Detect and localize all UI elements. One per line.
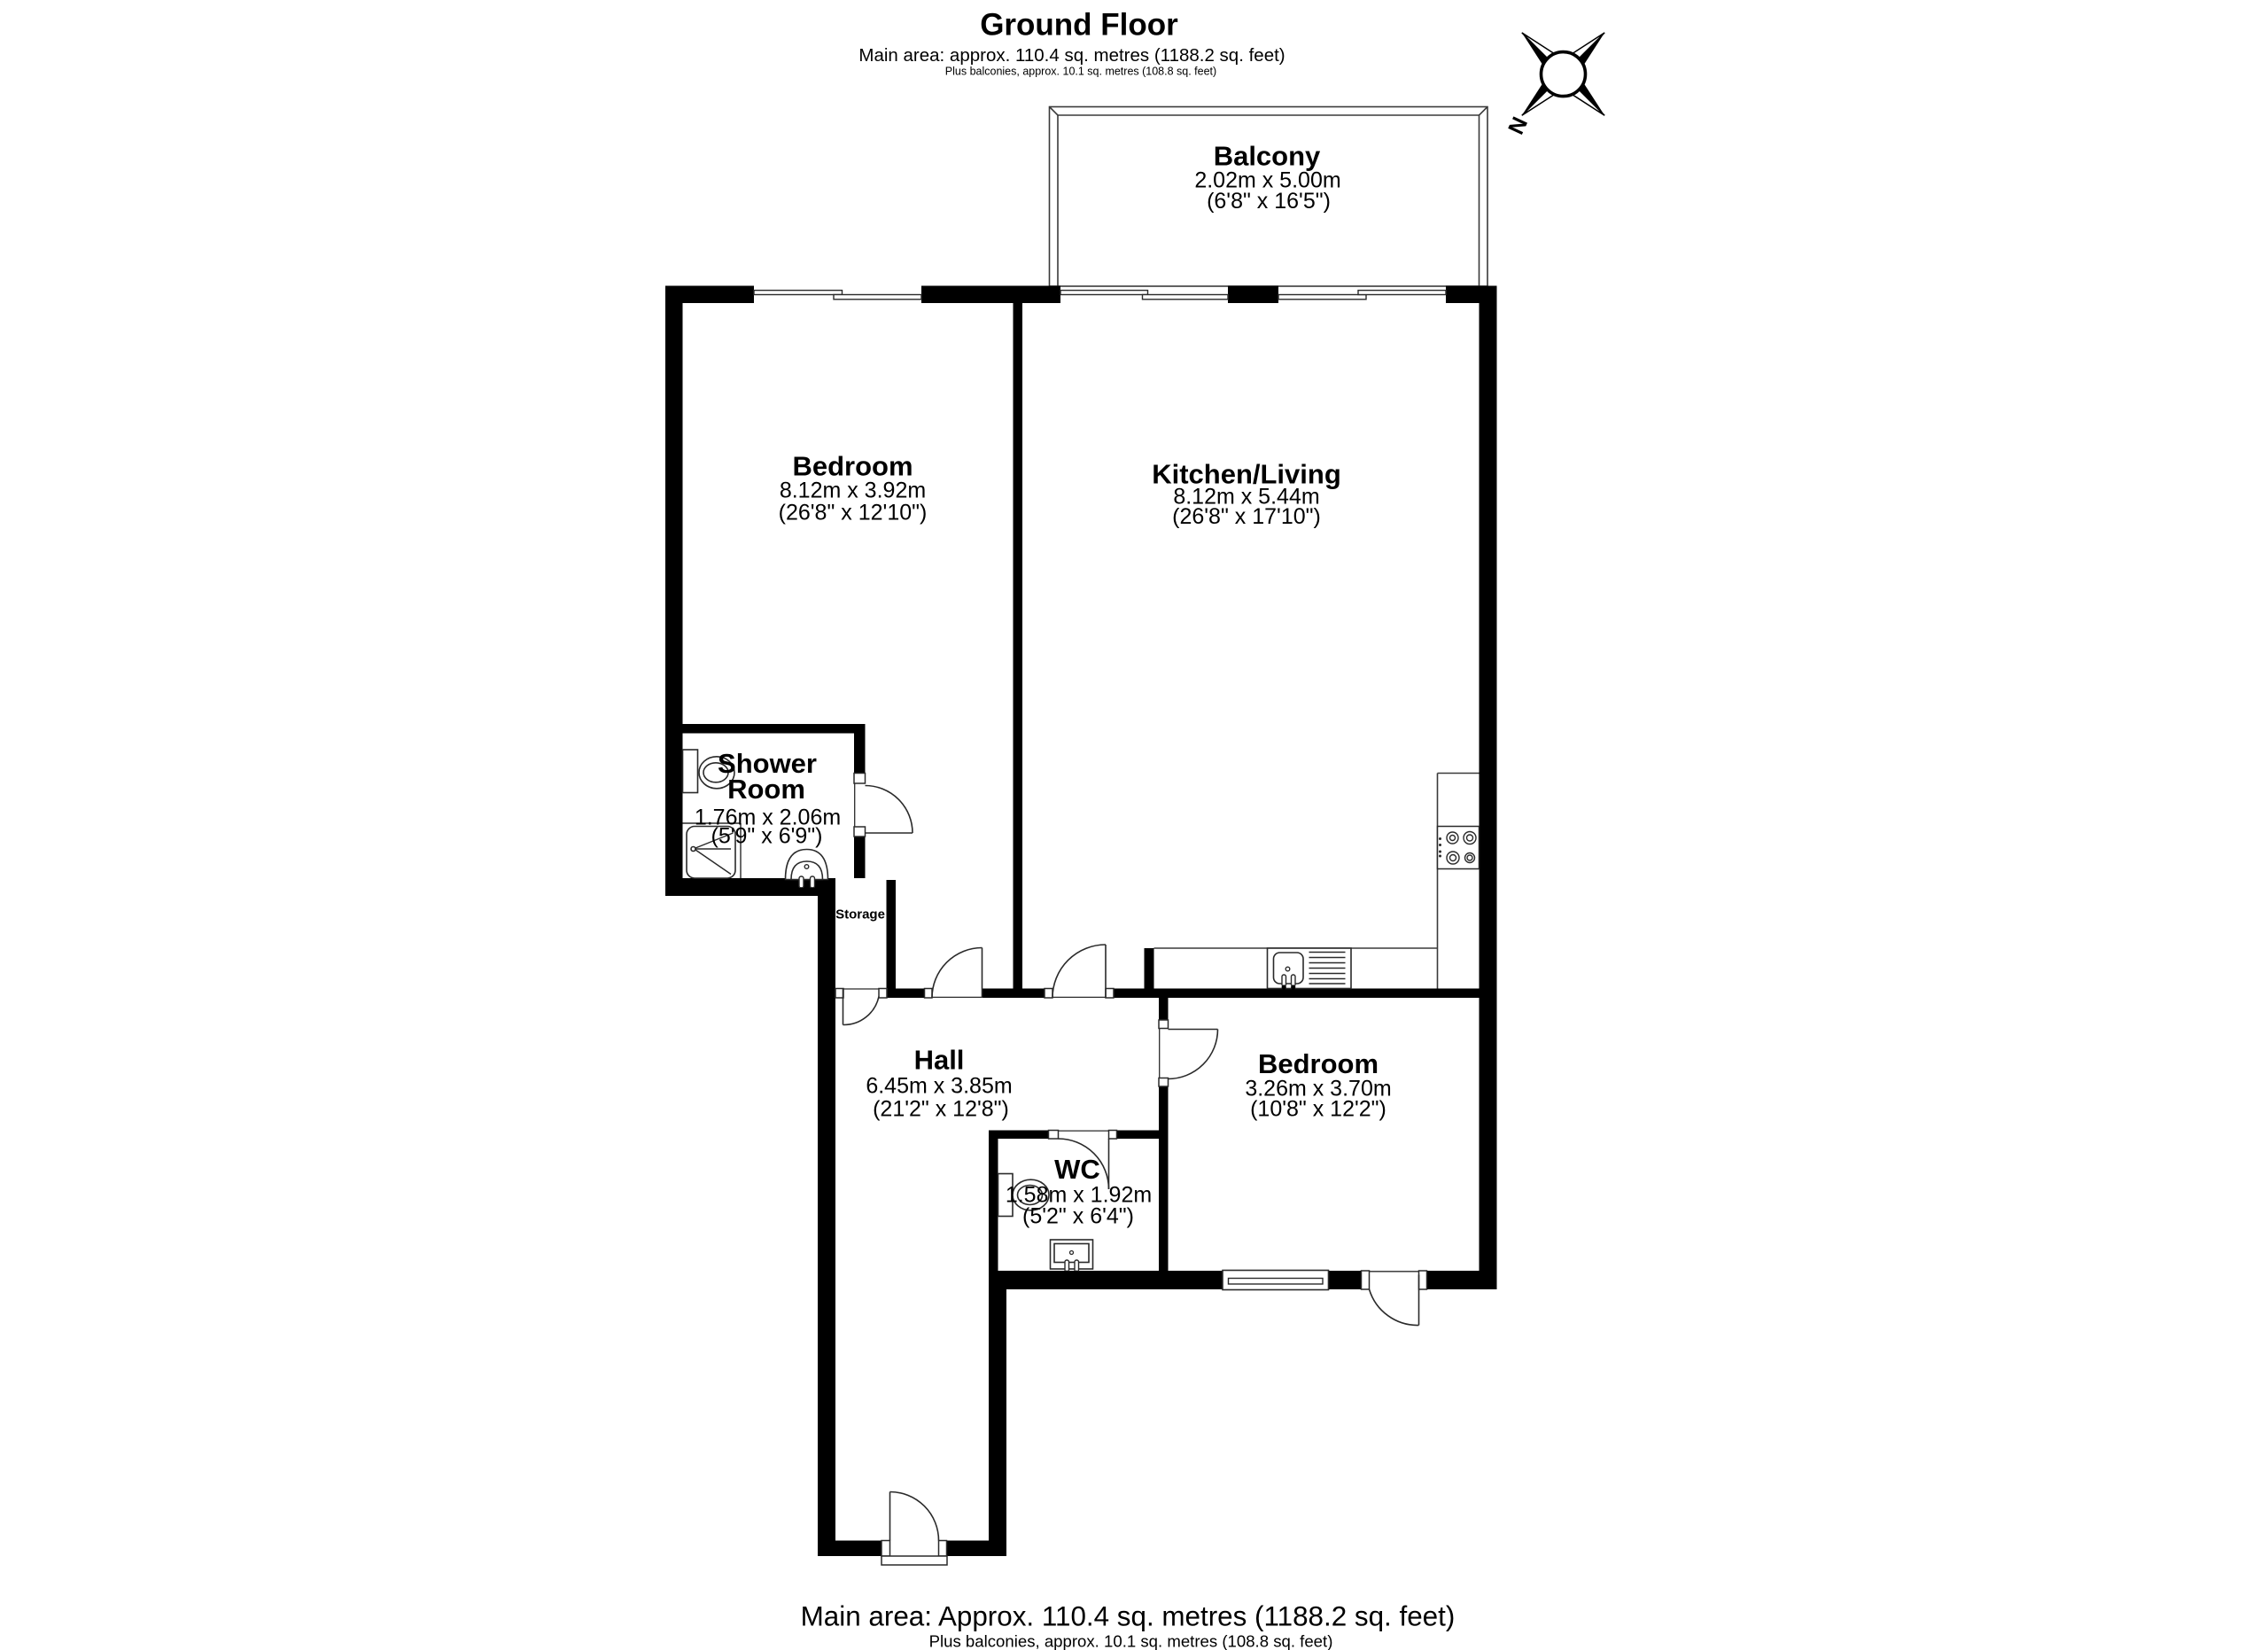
svg-text:(10'8" x 12'2"): (10'8" x 12'2") bbox=[1250, 1097, 1386, 1122]
svg-text:Bedroom: Bedroom bbox=[1258, 1048, 1379, 1079]
svg-text:Balcony: Balcony bbox=[1214, 141, 1321, 172]
svg-text:Bedroom: Bedroom bbox=[792, 451, 913, 482]
svg-text:(26'8" x 12'10"): (26'8" x 12'10") bbox=[779, 501, 928, 525]
svg-text:6.45m x 3.85m: 6.45m x 3.85m bbox=[866, 1074, 1012, 1099]
svg-text:(26'8" x 17'10"): (26'8" x 17'10") bbox=[1172, 504, 1321, 529]
svg-text:(5'9" x 6'9"): (5'9" x 6'9") bbox=[711, 824, 823, 849]
svg-text:Plus balconies, approx. 10.1 s: Plus balconies, approx. 10.1 sq. metres … bbox=[945, 66, 1216, 78]
svg-text:Room: Room bbox=[727, 774, 805, 805]
svg-text:(5'2" x 6'4"): (5'2" x 6'4") bbox=[1022, 1204, 1134, 1229]
svg-text:Storage: Storage bbox=[835, 907, 885, 922]
svg-text:(6'8" x 16'5"): (6'8" x 16'5") bbox=[1207, 189, 1331, 214]
svg-text:Main area: approx. 110.4 sq. m: Main area: approx. 110.4 sq. metres (118… bbox=[858, 45, 1285, 66]
svg-text:(21'2" x 12'8"): (21'2" x 12'8") bbox=[873, 1097, 1009, 1122]
svg-text:Main area: Approx. 110.4 sq. m: Main area: Approx. 110.4 sq. metres (118… bbox=[801, 1601, 1456, 1632]
svg-text:8.12m x 3.92m: 8.12m x 3.92m bbox=[780, 479, 926, 503]
svg-text:Hall: Hall bbox=[914, 1045, 965, 1076]
svg-text:Plus balconies, approx. 10.1 s: Plus balconies, approx. 10.1 sq. metres … bbox=[929, 1632, 1333, 1650]
svg-text:Ground Floor: Ground Floor bbox=[980, 8, 1178, 43]
svg-text:WC: WC bbox=[1054, 1154, 1100, 1185]
